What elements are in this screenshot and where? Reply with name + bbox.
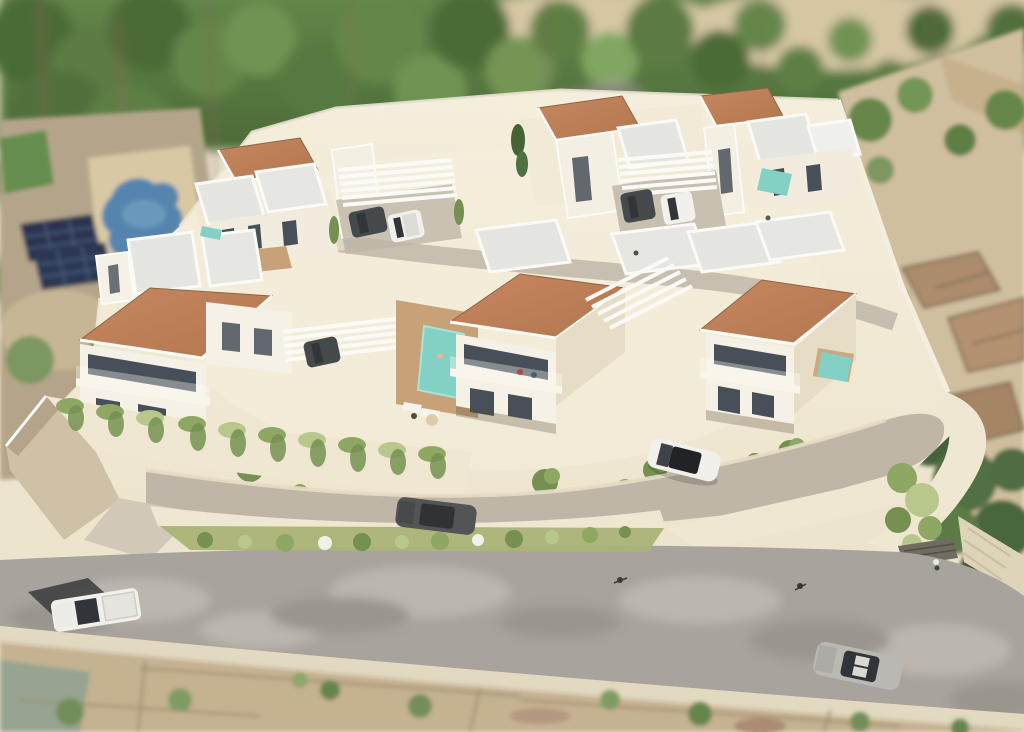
aerial-villa-render — [0, 0, 1024, 732]
render-canvas — [0, 0, 1024, 732]
warm-light-overlay — [0, 0, 1024, 732]
